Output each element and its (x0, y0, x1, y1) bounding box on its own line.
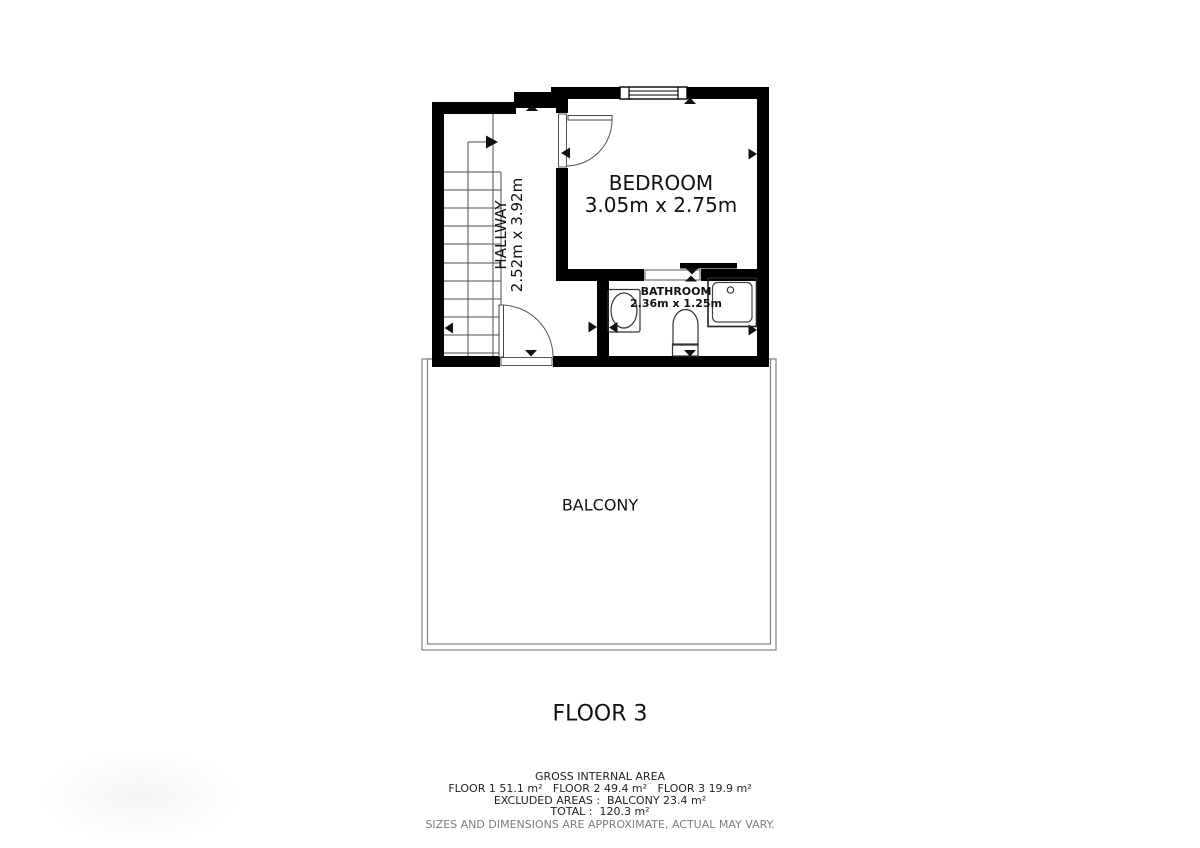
hallway-dimensions: 2.52m x 3.92m (509, 178, 525, 292)
dimension-arrow-icon (589, 322, 598, 333)
bottom-wall-right (553, 356, 769, 367)
bedroom-dimensions: 3.05m x 2.75m (585, 193, 738, 217)
dimension-arrow-icon (609, 322, 618, 333)
bedroom-top-wall-right (687, 87, 757, 99)
hallway-door-threshold (501, 358, 552, 366)
window-icon (620, 87, 687, 99)
dimension-arrow-icon (445, 323, 454, 334)
toilet-icon (673, 310, 699, 357)
bedroom-door-threshold (559, 114, 567, 167)
bathroom-left-wall (597, 275, 609, 356)
bathroom-dimensions: 2.36m x 1.25m (630, 298, 722, 310)
balcony-label: BALCONY (562, 496, 638, 515)
bedroom-left-wall-upper (556, 87, 568, 113)
bedroom-bathroom-wall-right (701, 269, 757, 281)
hallway-door-leaf (499, 305, 504, 357)
right-exterior-wall (757, 87, 769, 367)
faint-watermark (35, 748, 245, 843)
floor-plan-page: BEDROOM 3.05m x 2.75m HALLWAY 2.52m x 3.… (0, 0, 1200, 848)
hallway-label-block: HALLWAY 2.52m x 3.92m (493, 178, 525, 292)
door-swing-icon (566, 120, 612, 166)
dimension-arrow-icon (525, 350, 537, 357)
stair-direction-arrow-icon (486, 136, 498, 149)
bedroom-door (559, 114, 613, 167)
sliding-door-icon (680, 263, 737, 269)
left-exterior-wall (432, 102, 444, 367)
bedroom-door-leaf (568, 116, 612, 121)
bathroom-label-block: BATHROOM 2.36m x 1.25m (630, 286, 722, 310)
window-frame (620, 87, 687, 99)
hallway-balcony-door (499, 305, 553, 366)
walls (432, 87, 769, 367)
hallway-top-wall (432, 102, 516, 114)
bottom-wall-left (432, 356, 500, 367)
bedroom-label: BEDROOM (609, 171, 713, 195)
dimension-arrow-icon (749, 149, 758, 160)
bedroom-left-wall-lower (556, 168, 568, 281)
floor-title: FLOOR 3 (552, 702, 647, 727)
door-swing-icon (501, 305, 553, 357)
toilet-bowl (673, 310, 698, 346)
shower-drain (727, 287, 733, 293)
hallway-label: HALLWAY (493, 178, 509, 292)
